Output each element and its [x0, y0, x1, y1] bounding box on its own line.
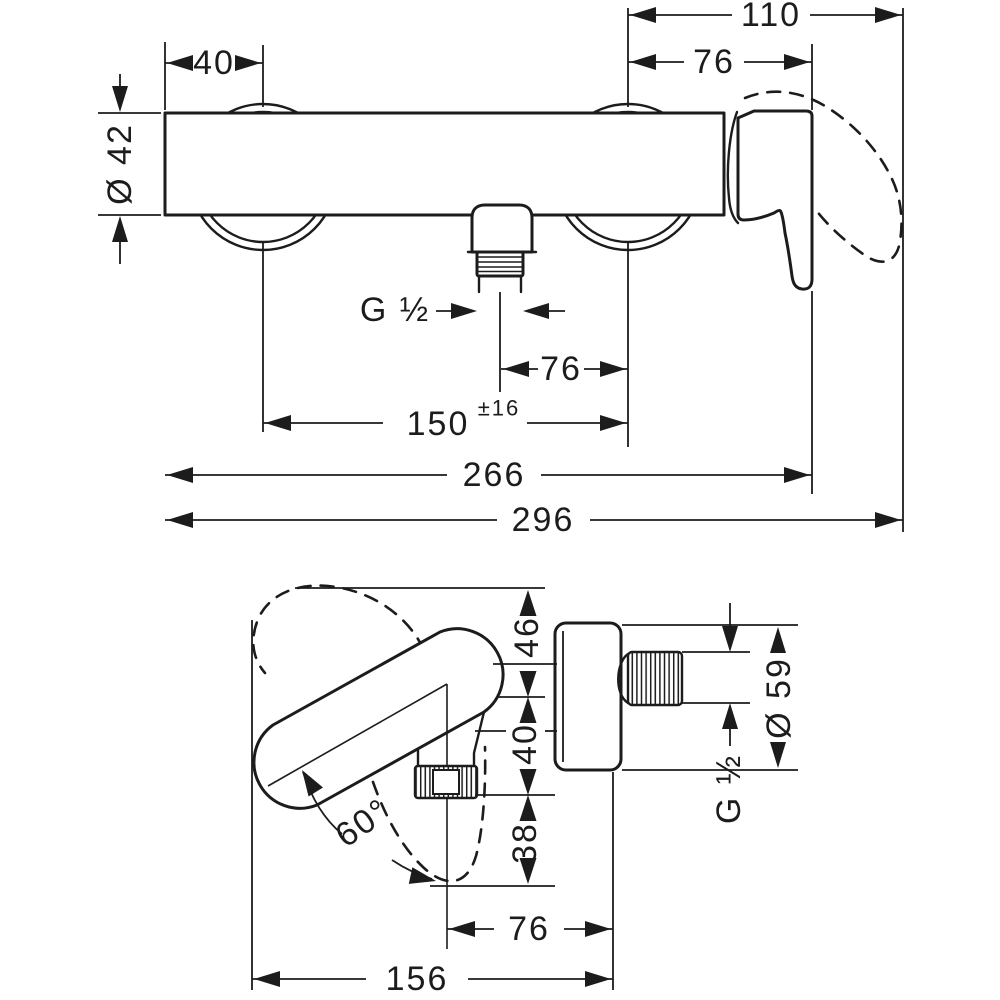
shower-mixer-dimension-drawing: 110 76 40 Ø 42 — [0, 0, 1000, 1000]
arrow-left — [167, 467, 193, 483]
dim-150-tolerance-label: ±16 — [478, 396, 521, 421]
arrow-right — [585, 971, 611, 987]
outlet-neck-right — [474, 712, 484, 766]
arrow-right — [784, 54, 810, 70]
dim-40-side-label: 40 — [506, 723, 544, 765]
outlet-thread-front — [477, 252, 523, 276]
dim-dia-42-label: Ø 42 — [101, 123, 139, 205]
arrow-up — [520, 590, 537, 616]
technical-drawing-page: 110 76 40 Ø 42 — [0, 0, 1000, 1000]
arrow-right — [600, 361, 626, 377]
arrow-down — [112, 86, 128, 112]
dim-150-label: 150 — [407, 405, 470, 443]
arrow-left — [630, 54, 656, 70]
dim-296-label: 296 — [512, 501, 575, 539]
mixer-body-front — [165, 113, 724, 215]
arrow-down — [722, 626, 738, 652]
arrow-up — [722, 703, 738, 729]
front-view: 110 76 40 Ø 42 — [98, 0, 903, 539]
arrow-left — [449, 921, 475, 937]
arrow-left — [167, 55, 193, 71]
outlet-boss-front — [472, 205, 532, 252]
handle-front — [738, 111, 812, 289]
arrow-bowtie-down — [520, 769, 537, 795]
dim-76-top: 76 — [628, 43, 812, 81]
dim-76-top-label: 76 — [693, 43, 735, 81]
dim-dia-42: Ø 42 — [101, 86, 139, 242]
outlet-nut-flat — [433, 770, 459, 794]
inlet-thread-side — [628, 652, 682, 705]
thread-label-front: G ½ — [360, 291, 430, 329]
dim-110-label: 110 — [741, 0, 801, 34]
dim-76-outlet-label: 76 — [540, 350, 582, 388]
arrow-up — [770, 627, 786, 653]
arrow-left — [167, 512, 193, 528]
dim-156-label: 156 — [386, 960, 449, 998]
dim-110: 110 — [628, 0, 903, 34]
arrow-up — [112, 216, 128, 242]
arrow-left — [503, 361, 529, 377]
dim-296: 296 — [165, 501, 903, 539]
dim-38-label: 38 — [506, 822, 544, 864]
dim-150: 150 ±16 — [263, 396, 628, 444]
mixer-body-side — [555, 623, 621, 770]
dim-46-label: 46 — [508, 616, 546, 658]
arrow-down — [770, 742, 786, 768]
arrow-right — [235, 55, 261, 71]
arrow-left — [523, 303, 549, 319]
side-right-dims: G ½ Ø 59 — [622, 603, 798, 824]
arrow-left — [254, 971, 280, 987]
side-view: 60° 46 40 38 — [252, 586, 798, 998]
dim-40-label: 40 — [193, 44, 235, 82]
arrow-right — [600, 415, 626, 431]
thread-label-side: G ½ — [710, 754, 748, 824]
thread-callout-front: G ½ — [360, 291, 565, 329]
arrow-right — [875, 7, 901, 23]
arrow-right — [585, 921, 611, 937]
arrow-bowtie-up — [520, 795, 537, 821]
dim-76-outlet: 76 — [501, 350, 628, 388]
arrow-right — [451, 303, 477, 319]
dim-266-label: 266 — [463, 456, 526, 494]
arrow-bowtie-up — [520, 697, 537, 723]
dim-40: 40 — [165, 44, 263, 82]
dim-266: 266 — [165, 456, 812, 494]
arrow-right — [784, 467, 810, 483]
arrow-left — [630, 7, 656, 23]
dim-angle-label: 60° — [329, 791, 398, 855]
arrow-bowtie-down — [520, 671, 537, 697]
arrow-right — [875, 512, 901, 528]
cartridge-collar — [728, 112, 738, 223]
arrow-left — [265, 415, 291, 431]
dim-76-side-label: 76 — [508, 910, 550, 948]
dim-dia-59-label: Ø 59 — [760, 657, 798, 739]
